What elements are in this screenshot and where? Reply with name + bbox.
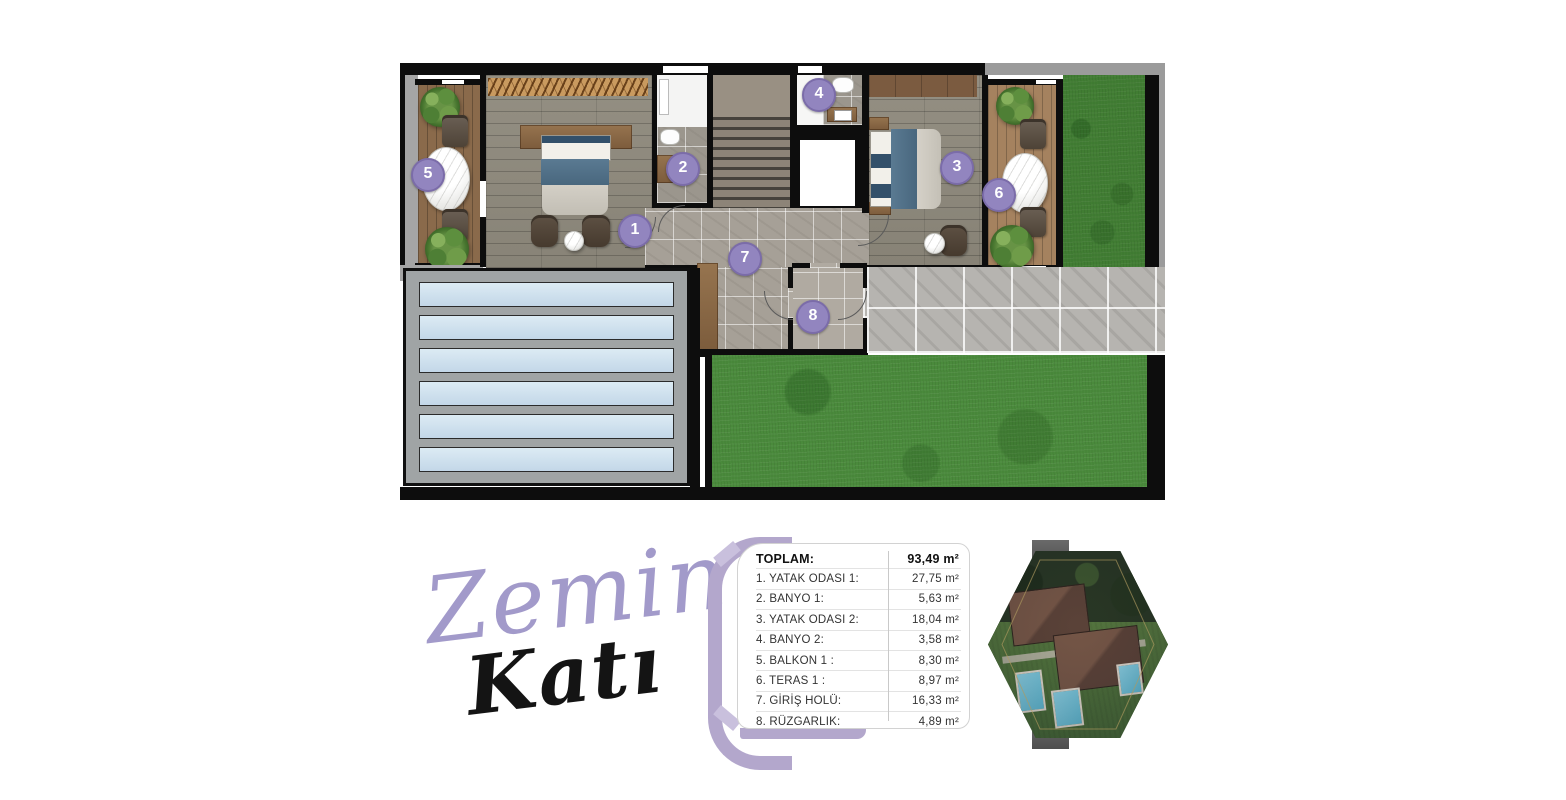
plan-bottom-wall — [400, 487, 1165, 500]
right-boundary-gray — [1159, 75, 1165, 267]
room-area-value: 8,97 m² — [871, 675, 961, 687]
table-divider — [888, 551, 889, 721]
room-label: 7. GİRİŞ HOLÜ: — [756, 695, 871, 707]
bedroom1-balcony-door — [480, 181, 486, 217]
room-label: 8. RÜZGARLIK: — [756, 716, 871, 728]
room-label: 4. BANYO 2: — [756, 634, 871, 646]
room-area-value: 16,33 m² — [871, 695, 961, 707]
room-badge-8: 8 — [796, 300, 830, 334]
top-window — [663, 66, 708, 73]
sink-basin — [834, 110, 852, 121]
room-area-value: 3,58 m² — [871, 634, 961, 646]
room-label: TOPLAM: — [756, 552, 871, 566]
room-badge-7: 7 — [728, 242, 762, 276]
terrace-right-wall — [1056, 79, 1063, 269]
room-label: 2. BANYO 1: — [756, 593, 871, 605]
bed-foot — [917, 129, 941, 209]
room-label: 6. TERAS 1 : — [756, 675, 871, 687]
wardrobe-icon — [869, 75, 977, 97]
room-area-value: 5,63 m² — [871, 593, 961, 605]
bed-blanket — [541, 159, 609, 185]
area-table-rows: TOPLAM:93,49 m²1. YATAK ODASI 1:27,75 m²… — [756, 549, 961, 732]
plan-top-boundary-gray — [985, 63, 1165, 75]
glass-pane — [419, 381, 674, 406]
bed-blanket — [891, 129, 917, 209]
terrace-window — [1036, 80, 1056, 84]
room-area-value: 4,89 m² — [871, 716, 961, 728]
bed-foot — [542, 185, 608, 215]
room-label: 3. YATAK ODASI 2: — [756, 614, 871, 626]
bed-pillows — [870, 131, 893, 207]
area-table-row: 1. YATAK ODASI 1:27,75 m² — [756, 569, 961, 589]
bedroom2-left-wall — [862, 75, 869, 213]
top-window — [798, 66, 822, 73]
side-table-icon — [924, 233, 945, 254]
area-table-row: 8. RÜZGARLIK:4,89 m² — [756, 712, 961, 731]
stone-path — [867, 267, 1165, 353]
bed-pillows — [541, 135, 611, 161]
lawn-right-wall — [1147, 355, 1165, 487]
lounge-chair-icon — [582, 215, 610, 247]
room-area-value: 18,04 m² — [871, 614, 961, 626]
glass-pane — [419, 414, 674, 439]
area-table-row: 2. BANYO 1:5,63 m² — [756, 590, 961, 610]
room-badge-4: 4 — [802, 78, 836, 112]
shaft — [792, 132, 863, 214]
room-label: 1. YATAK ODASI 1: — [756, 573, 871, 585]
right-garden-wall — [1145, 75, 1159, 267]
room-area-value: 8,30 m² — [871, 655, 961, 667]
bedroom1-left-wall — [480, 75, 486, 267]
area-table-row: 3. YATAK ODASI 2:18,04 m² — [756, 610, 961, 630]
room-area-value: 27,75 m² — [871, 573, 961, 585]
area-table-row: 7. GİRİŞ HOLÜ:16,33 m² — [756, 692, 961, 712]
page: { "title": { "word1": "Zemin", "word2": … — [0, 0, 1566, 800]
render-inner-border — [988, 551, 1168, 738]
room-badge-1: 1 — [618, 214, 652, 248]
hall-closet-icon — [697, 263, 718, 351]
room-badge-6: 6 — [982, 178, 1016, 212]
glass-pane — [419, 447, 674, 472]
villa-aerial-render — [988, 551, 1168, 738]
bath2-bottom-wall — [792, 125, 863, 132]
area-table-row: TOPLAM:93,49 m² — [756, 549, 961, 569]
glass-pane — [419, 315, 674, 340]
staircase — [713, 117, 790, 213]
lounge-chair-icon — [531, 215, 558, 247]
wardrobe-icon — [488, 78, 648, 96]
area-table-row: 6. TERAS 1 :8,97 m² — [756, 671, 961, 691]
nightstand-icon — [869, 117, 889, 130]
glass-pane — [419, 282, 674, 307]
chair-icon — [442, 115, 468, 147]
balcony-window — [442, 80, 464, 84]
toilet-icon — [660, 129, 680, 145]
room-label: 5. BALKON 1 : — [756, 655, 871, 667]
chair-icon — [1020, 119, 1046, 149]
glass-roof — [403, 268, 690, 486]
side-table-icon — [564, 231, 584, 251]
room-badge-2: 2 — [666, 152, 700, 186]
glass-pane — [419, 348, 674, 373]
room-badge-5: 5 — [411, 158, 445, 192]
area-table-row: 4. BANYO 2:3,58 m² — [756, 631, 961, 651]
garden-lawn-bottom — [712, 355, 1147, 487]
vestibule-door-gap — [810, 263, 840, 268]
glass-structure-edge — [690, 268, 700, 487]
room-badge-3: 3 — [940, 151, 974, 185]
area-table-row: 5. BALKON 1 :8,30 m² — [756, 651, 961, 671]
tree-icon — [990, 225, 1034, 269]
garden-lawn-top — [1063, 75, 1145, 267]
floor-plan: 12345678 — [400, 63, 1165, 500]
shower-panel — [659, 79, 669, 115]
area-table: TOPLAM:93,49 m²1. YATAK ODASI 1:27,75 m²… — [737, 543, 970, 729]
room-area-value: 93,49 m² — [871, 552, 961, 566]
lawn-left-wall — [705, 355, 712, 487]
stair-landing — [713, 75, 790, 117]
